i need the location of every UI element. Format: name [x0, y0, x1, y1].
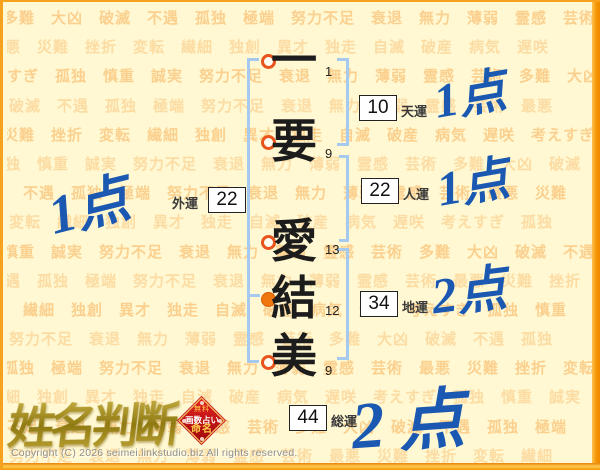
badge-line-muryo: 無料	[179, 405, 225, 415]
name-bracket-left	[247, 58, 259, 363]
name-character-4: 結	[265, 276, 323, 322]
stroke-count-4: 12	[325, 303, 351, 318]
badge-line-meimei: 命名	[179, 425, 225, 435]
free-kamei-badge[interactable]: 無料 画数占い 命名	[179, 398, 225, 444]
gaiun-label: 外運	[172, 193, 198, 212]
gaiun-value-box: 22	[208, 187, 246, 213]
seimei-result-page: 多難 大凶 破滅 不遇 孤独 極端 努力不足 衰退 無力 薄弱 霊感 芸術最悪 …	[0, 0, 600, 470]
tenun-label: 天運	[401, 101, 427, 120]
stroke-count-1: 1	[325, 64, 351, 79]
tenun-score: 1点	[427, 50, 510, 131]
jinun-label: 人運	[403, 184, 429, 203]
name-character-2: 要	[265, 119, 323, 165]
badge-text: 無料 画数占い 命名	[179, 405, 225, 435]
souun-score: 2点	[348, 364, 481, 469]
name-character-3: 愛	[265, 219, 323, 265]
copyright-text: Copyright (C) 2026 seimei.linkstudio.biz…	[11, 447, 297, 459]
name-character-5: 美	[265, 334, 323, 380]
stroke-count-2: 9	[325, 146, 351, 161]
frame-edge-bottom	[3, 463, 600, 470]
chiun-label: 地運	[402, 297, 428, 316]
chiun-value-box: 34	[360, 291, 398, 317]
tenun-value-box: 10	[359, 95, 397, 121]
badge-corner-dot	[200, 437, 204, 441]
stroke-count-3: 13	[325, 242, 351, 257]
jinun-value-box: 22	[361, 178, 399, 204]
name-bracket-mid-tick	[247, 294, 260, 297]
name-character-1: 一	[265, 38, 323, 84]
souun-value-box: 44	[289, 405, 327, 431]
chiun-score: 2点	[427, 248, 510, 329]
jinun-score: 1点	[430, 138, 513, 219]
frame-edge-right	[592, 2, 600, 470]
jinun-bracket	[339, 155, 349, 242]
